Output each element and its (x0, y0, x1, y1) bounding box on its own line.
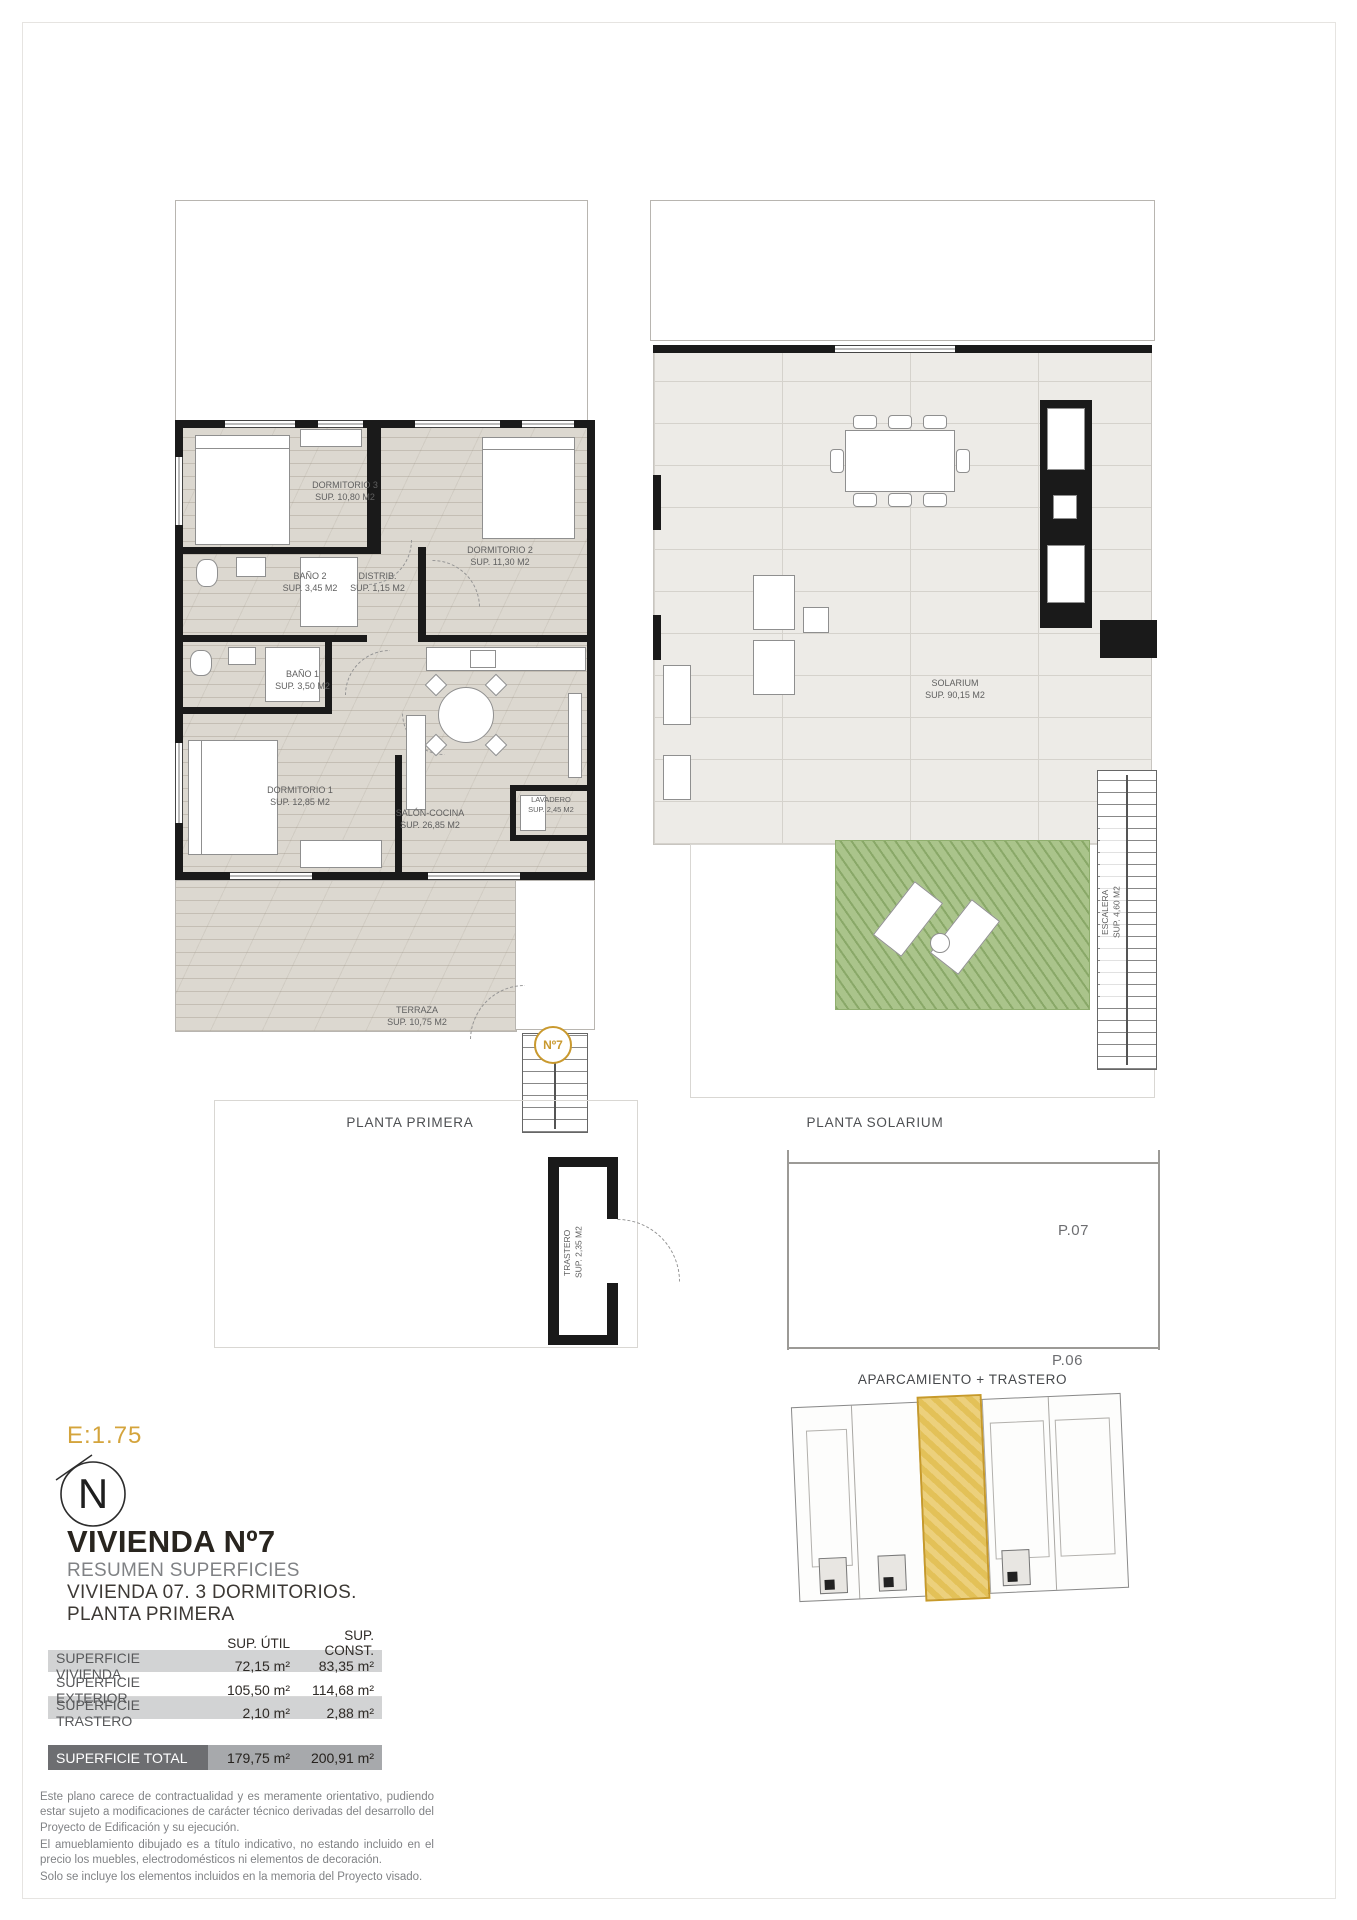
parking-line (787, 1150, 789, 1350)
window (415, 420, 500, 428)
window (835, 345, 955, 353)
col-sup-util: SUP. ÚTIL (208, 1636, 298, 1651)
stair-core (877, 1554, 907, 1591)
floorplan-planta-primera: DORMITORIO 3 SUP. 10,80 M2 DORMITORIO 2 … (170, 195, 640, 1355)
stair-core (818, 1557, 848, 1594)
shaft-room (1047, 408, 1085, 470)
room-label-bano-1: BAÑO 1 SUP. 3,50 M2 (240, 669, 365, 692)
room-label-escalera: ESCALERA SUP. 4,60 M2 (1100, 825, 1126, 1000)
room-label-solarium: SOLARIUM SUP. 90,15 M2 (880, 678, 1030, 701)
room-label-distribuidor: DISTRIB. SUP. 1,15 M2 (335, 571, 420, 594)
sliding-door (428, 872, 520, 880)
caption-aparcamiento: APARCAMIENTO + TRASTERO (790, 1372, 1135, 1387)
coffee-table (803, 607, 829, 633)
table-row: SUPERFICIE TRASTERO 2,10 m² 2,88 m² (48, 1697, 382, 1721)
trastero-wall (607, 1283, 618, 1345)
bed (482, 437, 575, 539)
highlighted-unit-7 (916, 1394, 990, 1602)
sofa (753, 640, 795, 695)
sofa (753, 575, 795, 630)
surface-table: SUP. ÚTIL SUP. CONST. SUPERFICIE VIVIEND… (48, 1628, 382, 1721)
partition-wall (510, 835, 588, 841)
chair (956, 449, 970, 473)
partition-wall (418, 635, 587, 642)
stair-direction-line (1126, 775, 1128, 1065)
wardrobe (300, 840, 382, 868)
toilet (190, 650, 212, 676)
room-label-salon-cocina: SALÓN-COCINA SUP. 26,85 M2 (355, 808, 505, 831)
chair (888, 415, 912, 429)
room-label-dormitorio-2: DORMITORIO 2 SUP. 11,30 M2 (425, 545, 575, 568)
partition-wall (182, 547, 381, 554)
bed-headboard (195, 435, 290, 449)
caption-planta-primera: PLANTA PRIMERA (180, 1115, 640, 1130)
parking-space-p07: P.07 (1058, 1222, 1089, 1239)
north-compass-icon: N (52, 1452, 132, 1532)
entry-porch (515, 880, 595, 1030)
subtitle-planta: PLANTA PRIMERA (67, 1604, 235, 1626)
trastero-label: TRASTERO SUP. 2,35 M2 (562, 1185, 604, 1320)
room-label-lavadero: LAVADERO SUP. 2,45 M2 (515, 795, 587, 815)
window (318, 420, 363, 428)
parking-line (787, 1347, 1159, 1349)
fixture (1053, 495, 1077, 519)
dining-table (438, 687, 494, 743)
col-sup-const: SUP. CONST. (298, 1628, 382, 1658)
sliding-door (230, 872, 312, 880)
site-unit (1055, 1418, 1115, 1557)
bed-headboard (188, 740, 202, 855)
partition-wall (510, 785, 588, 791)
wall (653, 615, 661, 660)
key-site-plan (791, 1393, 1129, 1602)
side-table (930, 933, 950, 953)
window (175, 457, 183, 525)
trastero-wall (548, 1157, 559, 1345)
tv-unit (568, 693, 582, 778)
surface-table-header: SUP. ÚTIL SUP. CONST. (48, 1628, 382, 1650)
wall (1100, 620, 1157, 658)
unit-number-badge: Nº7 (534, 1026, 572, 1064)
floorplan-planta-solarium: SOLARIUM SUP. 90,15 M2 ESCALERA SUP. 4,6… (645, 195, 1160, 1355)
bed-headboard (482, 437, 575, 450)
wall (587, 420, 595, 880)
window (522, 420, 574, 428)
wall (653, 475, 661, 530)
site-unit (990, 1420, 1050, 1559)
room-label-terraza: TERRAZA SUP. 10,75 M2 (342, 1005, 492, 1028)
legal-disclaimer: Este plano carece de contractualidad y e… (40, 1790, 434, 1888)
room-label-dormitorio-1: DORMITORIO 1 SUP. 12,85 M2 (225, 785, 375, 808)
window (175, 743, 183, 823)
subtitle-resumen: RESUMEN SUPERFICIES (67, 1560, 300, 1582)
stair-core (1002, 1549, 1032, 1586)
scale-label: E:1.75 (67, 1422, 142, 1450)
dining-table (845, 430, 955, 492)
planter (663, 665, 691, 725)
site-unit (806, 1429, 853, 1568)
kitchen-sink (470, 650, 496, 668)
partition-wall (182, 635, 367, 642)
svg-text:N: N (78, 1470, 108, 1517)
table-row: SUPERFICIE EXTERIOR 105,50 m² 114,68 m² (48, 1674, 382, 1697)
open-roof-area (175, 200, 588, 421)
sofa (406, 715, 426, 810)
page-title: VIVIENDA Nº7 (67, 1524, 275, 1560)
chair (923, 415, 947, 429)
trastero-wall (607, 1157, 618, 1219)
parking-line (1158, 1150, 1160, 1350)
chair (888, 493, 912, 507)
parking-space-p06: P.06 (1052, 1352, 1083, 1369)
window (225, 420, 295, 428)
wardrobe (300, 429, 362, 447)
planter (663, 755, 691, 800)
subtitle-vivienda: VIVIENDA 07. 3 DORMITORIOS. (67, 1582, 357, 1604)
room-label-dormitorio-3: DORMITORIO 3 SUP. 10,80 M2 (270, 480, 420, 503)
shaft-room (1047, 545, 1085, 603)
plan-sheet: DORMITORIO 3 SUP. 10,80 M2 DORMITORIO 2 … (0, 0, 1357, 1920)
toilet (196, 559, 218, 587)
sink (228, 647, 256, 665)
partition-wall (182, 707, 332, 714)
chair (853, 415, 877, 429)
kitchen-counter (426, 647, 586, 671)
chair (830, 449, 844, 473)
parking-line (787, 1162, 1159, 1164)
open-roof-area (650, 200, 1155, 341)
chair (853, 493, 877, 507)
surface-table-total-row: SUPERFICIE TOTAL 179,75 m² 200,91 m² (48, 1745, 382, 1770)
caption-planta-solarium: PLANTA SOLARIUM (645, 1115, 1105, 1130)
chair (923, 493, 947, 507)
